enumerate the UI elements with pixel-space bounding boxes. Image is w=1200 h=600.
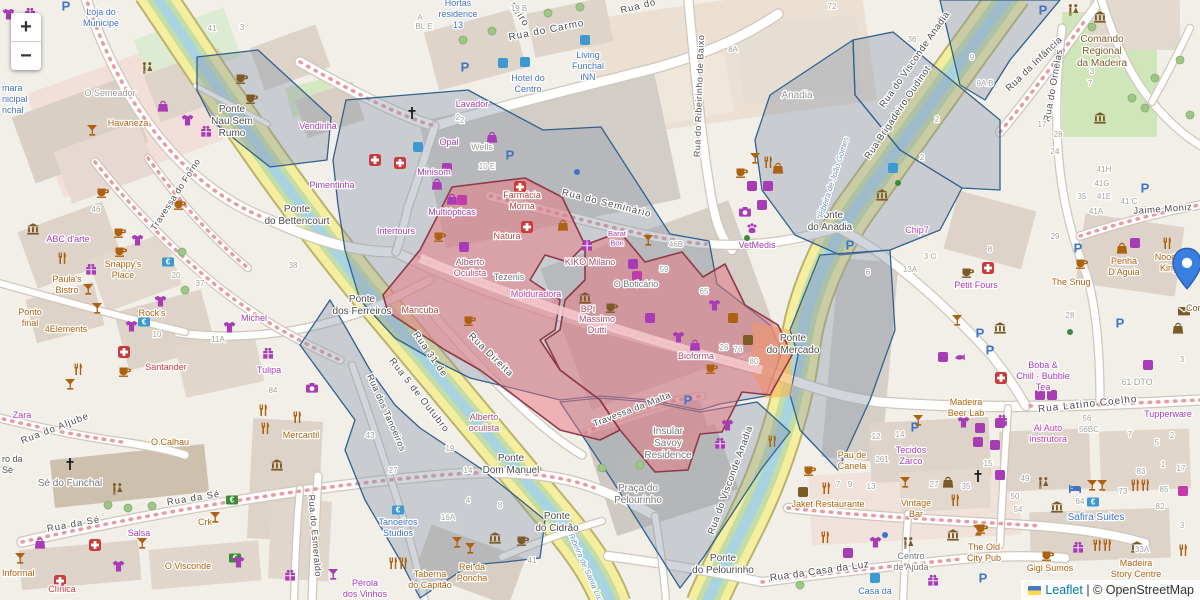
poi-cross-icon[interactable] — [995, 372, 1007, 384]
housenumber-label: 41A — [1089, 207, 1104, 216]
map-label: Albertooculista — [469, 412, 500, 433]
tree-icon — [636, 461, 644, 469]
map-label: Tupperware — [1144, 409, 1192, 419]
housenumber-label: 12 — [872, 432, 881, 441]
poi-dot[interactable] — [1067, 329, 1073, 335]
map-label: Pimentinha — [309, 180, 354, 190]
map-label: The OldCity Pub — [967, 542, 1001, 563]
housenumber-label: 50 — [1011, 492, 1020, 501]
map-label: O Boticário — [614, 279, 659, 289]
zoom-in-button[interactable]: + — [11, 13, 41, 42]
housenumber-label: 46 — [92, 205, 101, 214]
tree-icon — [1141, 104, 1149, 112]
map-label: 61 DTO — [1121, 377, 1152, 387]
housenumber-label: 5 — [1155, 438, 1160, 447]
housenumber-label: 2 — [456, 113, 461, 122]
map-label: Paula'sBistro — [52, 274, 82, 295]
poi-atm-icon[interactable] — [392, 506, 404, 515]
map-label: Informal — [2, 568, 35, 578]
tree-icon — [124, 504, 132, 512]
poi-atm-icon[interactable] — [1087, 498, 1099, 507]
poi-cross-icon[interactable] — [394, 157, 406, 169]
map-label: Santander — [145, 362, 187, 372]
map-label: ComandoRegionalda Madeira — [1077, 34, 1127, 69]
poi-P-icon[interactable] — [986, 343, 995, 358]
housenumber-label: 49 — [1021, 474, 1030, 483]
tree-icon — [1128, 94, 1136, 102]
poi-sq-icon[interactable] — [747, 181, 757, 191]
housenumber-label: 3 — [240, 23, 245, 32]
housenumber-label: 84 — [269, 386, 278, 395]
map-label: VetMedis — [738, 240, 776, 250]
housenumber-label: 8 — [988, 245, 993, 254]
housenumber-label: 29 — [1051, 232, 1060, 241]
marker-dot — [1182, 258, 1192, 268]
map-label: Anadia — [781, 90, 813, 101]
map-label: Casa da — [858, 586, 892, 596]
housenumber-label: 6 — [866, 268, 871, 277]
housenumber-label: 11A — [211, 335, 225, 344]
poi-cross-icon[interactable] — [89, 539, 101, 551]
housenumber-label: 10 E — [479, 162, 495, 171]
map-label: The Snug — [1051, 277, 1090, 287]
map-label: Rock's — [139, 308, 166, 318]
map-label: Tabernado Capitão — [408, 569, 452, 590]
leaflet-link[interactable]: Leaflet — [1045, 583, 1083, 597]
housenumber-label: 10 — [153, 330, 162, 339]
tree-icon — [104, 501, 112, 509]
map-label: BPI — [581, 304, 596, 314]
map-label: PenhaD'Aguia — [1108, 256, 1139, 277]
map-label: Molduradora — [511, 289, 562, 299]
housenumber-label: 37 — [196, 279, 205, 288]
poi-P-icon[interactable] — [1116, 316, 1125, 331]
housenumber-label: 33A — [1135, 545, 1150, 554]
poi-dot[interactable] — [882, 532, 888, 538]
poi-sq-icon[interactable] — [645, 313, 655, 323]
tree-icon — [576, 3, 584, 11]
housenumber-label: 1 — [1161, 460, 1166, 469]
map-label: O Calhau — [151, 437, 189, 447]
map-label: Crk — [198, 517, 212, 527]
housenumber-label: 72 — [828, 2, 837, 11]
housenumber-label: 59 — [660, 265, 669, 274]
housenumber-label: 3 — [1090, 67, 1095, 76]
map-label: Correi — [1186, 303, 1200, 313]
housenumber-label: 9 — [848, 480, 853, 489]
map-label: Rei daPoncha — [457, 562, 488, 583]
housenumber-label: 41 — [208, 24, 217, 33]
poi-P-icon[interactable] — [1141, 181, 1150, 196]
map-label: Tulipa — [257, 365, 281, 375]
housenumber-label: 2 — [935, 115, 940, 124]
housenumber-label: 7 — [1088, 79, 1093, 88]
tree-icon — [1186, 111, 1194, 119]
map-label: Mercantil — [283, 430, 320, 440]
map-label: 4Elements — [45, 324, 88, 334]
map-label: Wells — [471, 142, 493, 152]
poi-sq-icon[interactable] — [995, 470, 1005, 480]
tree-icon — [598, 464, 606, 472]
zoom-out-button[interactable]: − — [11, 42, 41, 70]
map-label: O Visconde — [165, 561, 211, 571]
map-label: AlbertoOculista — [454, 257, 487, 278]
poi-sq-icon[interactable] — [457, 195, 467, 205]
map-label: Pau deCanela — [838, 450, 867, 471]
tree-icon — [796, 581, 804, 589]
housenumber-label: 19 — [446, 444, 455, 453]
marker-pin-icon — [1173, 248, 1200, 288]
attribution-divider: | © — [1083, 583, 1106, 597]
housenumber-label: 24 — [1051, 147, 1060, 156]
map-label: Vendinha — [299, 121, 337, 131]
map-label: Bioforma — [678, 351, 714, 361]
housenumber-label: 36 — [908, 35, 917, 44]
poi-sq-icon[interactable] — [888, 163, 898, 173]
tree-icon — [1088, 23, 1096, 31]
housenumber-label: 80 — [750, 357, 759, 366]
housenumber-label: 17 — [1177, 464, 1186, 473]
poi-sq-icon[interactable] — [870, 573, 880, 583]
map-label: TanoeirosStudios — [378, 517, 418, 538]
housenumber-label: 16A — [441, 513, 456, 522]
map-label: Sé do Funchal — [38, 478, 103, 489]
map-label: TecidosZarco — [896, 445, 927, 466]
poi-cross-icon[interactable] — [521, 221, 533, 233]
housenumber-label: 2 — [1170, 431, 1175, 440]
map-label: Petit Fours — [954, 280, 998, 290]
housenumber-label: 8A — [728, 45, 738, 54]
location-marker[interactable] — [1172, 246, 1200, 292]
map-label: Jaket Restaurante — [791, 499, 864, 509]
housenumber-label: 28 — [1066, 311, 1075, 320]
housenumber-label: 2 — [920, 153, 925, 162]
ukraine-flag-icon — [1028, 586, 1041, 595]
housenumber-label: 13 — [867, 482, 876, 491]
housenumber-label: 7 — [1128, 430, 1133, 439]
tree-icon — [181, 286, 189, 294]
map-label: Intertours — [377, 226, 416, 236]
housenumber-label: 46B — [669, 240, 683, 249]
housenumber-label: 64 — [1076, 497, 1085, 506]
housenumber-label: 41G — [1094, 179, 1109, 188]
poi-sq-icon[interactable] — [1178, 486, 1188, 496]
map-label: MadeiraBeer Lab — [948, 397, 985, 418]
housenumber-label: 9 — [970, 53, 975, 62]
poi-atm-icon[interactable] — [138, 318, 150, 327]
housenumber-label: 76 — [734, 345, 743, 354]
poi-sq-icon[interactable] — [728, 313, 738, 323]
map-label: Centrode Ajuda — [893, 551, 928, 572]
map-label: Zara — [13, 410, 32, 420]
poi-sq-icon[interactable] — [763, 181, 773, 191]
poi-sq-icon[interactable] — [628, 259, 638, 269]
zoom-control: + − — [11, 13, 41, 70]
housenumber-label: 15 — [984, 459, 993, 468]
housenumber-label: 65 — [700, 287, 709, 296]
housenumber-label: 83 — [1137, 467, 1146, 476]
tree-icon — [459, 36, 467, 44]
poi-cross-icon[interactable] — [118, 346, 130, 358]
attribution-bar: Leaflet | © OpenStreetMap — [1021, 580, 1200, 600]
poi-dot[interactable] — [574, 169, 580, 175]
housenumber-label: 56BC — [1079, 425, 1099, 434]
housenumber-label: 28 — [1054, 130, 1063, 139]
housenumber-label: 38 — [289, 261, 298, 270]
housenumber-label: 8 — [498, 501, 503, 510]
housenumber-label: 82 — [1156, 502, 1165, 511]
poi-P-icon[interactable] — [1039, 3, 1048, 18]
map-label: Havaneza — [108, 118, 149, 128]
housenumber-label: 27 — [389, 466, 398, 475]
poi-cross-icon[interactable] — [982, 262, 994, 274]
map-label: Minisom — [417, 167, 451, 177]
housenumber-label: 13A — [903, 265, 918, 274]
housenumber-label: A — [417, 13, 423, 22]
housenumber-label: 9A B — [977, 79, 994, 88]
housenumber-label: 35 — [962, 482, 971, 491]
tree-icon — [1176, 56, 1184, 64]
housenumber-label: 41 C — [1121, 197, 1138, 206]
osm-link[interactable]: OpenStreetMap — [1106, 583, 1194, 597]
poi-sq-icon[interactable] — [498, 58, 508, 68]
map-label: Natura — [493, 231, 520, 241]
map-canvas[interactable]: P € — [0, 0, 1200, 600]
housenumber-label: 7 — [836, 480, 841, 489]
map-label: O Semeador — [84, 88, 135, 98]
housenumber-label: 85 — [1160, 485, 1169, 494]
poi-sq-icon[interactable] — [1143, 360, 1153, 370]
housenumber-label: 54 — [1014, 505, 1023, 514]
poi-sq-icon[interactable] — [413, 142, 423, 152]
housenumber-label: 17 — [1038, 120, 1047, 129]
poi-sq-icon[interactable] — [975, 423, 985, 433]
tree-icon — [178, 248, 186, 256]
map-label: Safira Suites — [1068, 512, 1125, 523]
poi-P-icon[interactable] — [976, 326, 985, 341]
map-label: Opal — [439, 137, 458, 147]
map-label: Tezenis — [494, 272, 525, 282]
map-label: Salsa — [128, 528, 151, 538]
poi-atm-icon[interactable] — [162, 258, 174, 267]
tree-icon — [1151, 74, 1159, 82]
housenumber-label: 14 — [464, 466, 473, 475]
map-label: ABC d'arte — [46, 234, 89, 244]
map-label: 2 — [460, 116, 465, 125]
poi-P-icon[interactable] — [684, 393, 693, 408]
poi-sq-icon[interactable] — [580, 35, 590, 45]
housenumber-label: 73 — [1119, 487, 1128, 496]
poi-sq-icon[interactable] — [843, 548, 853, 558]
poi-dot[interactable] — [895, 180, 901, 186]
map-label: Multiópticas — [428, 207, 476, 217]
map-label: Michel — [241, 313, 267, 323]
housenumber-label: BL E — [415, 22, 432, 31]
map-label: Lavador — [456, 99, 489, 109]
poi-sq-icon[interactable] — [520, 57, 530, 67]
housenumber-label: 3 — [1180, 355, 1185, 364]
poi-cross-icon[interactable] — [369, 154, 381, 166]
poi-P-icon[interactable] — [461, 60, 470, 75]
housenumber-label: 35 — [1078, 192, 1087, 201]
housenumber-label: 14 — [896, 430, 905, 439]
housenumber-label: 26 — [720, 343, 729, 352]
housenumber-label: 27 — [930, 480, 939, 489]
housenumber-label: 3 C — [924, 252, 937, 261]
poi-P-icon[interactable] — [62, 0, 71, 14]
poi-sq-icon[interactable] — [938, 352, 948, 362]
map-label: Gigi Sumos — [1027, 563, 1074, 573]
poi-P-icon[interactable] — [979, 571, 988, 586]
map-label: Clínica — [48, 584, 76, 594]
poi-sq-icon[interactable] — [757, 200, 767, 210]
housenumber-label: 3 — [1180, 521, 1185, 530]
poi-P-icon[interactable] — [846, 238, 855, 253]
poi-sq-icon[interactable] — [743, 335, 753, 345]
poi-P-icon[interactable] — [506, 148, 515, 163]
map-label: Mancuba — [401, 305, 438, 315]
poi-P-icon[interactable] — [1074, 241, 1083, 256]
poi-sq-icon[interactable] — [990, 440, 1000, 450]
map-label: Loja doMunicipe — [83, 7, 119, 28]
housenumber-label: 4 — [466, 496, 471, 505]
poi-sq-icon[interactable] — [798, 487, 808, 497]
map-label: Praça doPelourinho — [614, 483, 662, 506]
tree-icon — [148, 502, 156, 510]
housenumber-label: 41 — [528, 556, 537, 565]
map-label: Hotel doCentro — [511, 73, 545, 94]
poi-atm-icon[interactable] — [226, 496, 238, 505]
housenumber-label: 43 — [366, 431, 375, 440]
poi-sq-icon[interactable] — [995, 418, 1005, 428]
poi-sq-icon[interactable] — [973, 437, 983, 447]
housenumber-label: 19 B — [511, 4, 527, 13]
housenumber-label: 56 — [1083, 414, 1092, 423]
housenumber-label: 20 — [172, 271, 181, 280]
poi-sq-icon[interactable] — [1130, 238, 1140, 248]
tree-icon — [544, 9, 552, 17]
map-label: Al AutoInstrutora — [1029, 423, 1067, 444]
map-label: Pontofinal — [18, 307, 42, 328]
map-viewport[interactable]: P € — [0, 0, 1200, 600]
housenumber-label: 41H — [1097, 165, 1112, 174]
tree-icon — [488, 27, 496, 35]
poi-sq-icon[interactable] — [459, 242, 469, 252]
map-label: KIKO Milano — [565, 257, 616, 267]
housenumber-label: 41E — [1097, 192, 1111, 201]
housenumber-label: 261 — [875, 455, 889, 464]
map-label: Chip7 — [905, 225, 929, 235]
